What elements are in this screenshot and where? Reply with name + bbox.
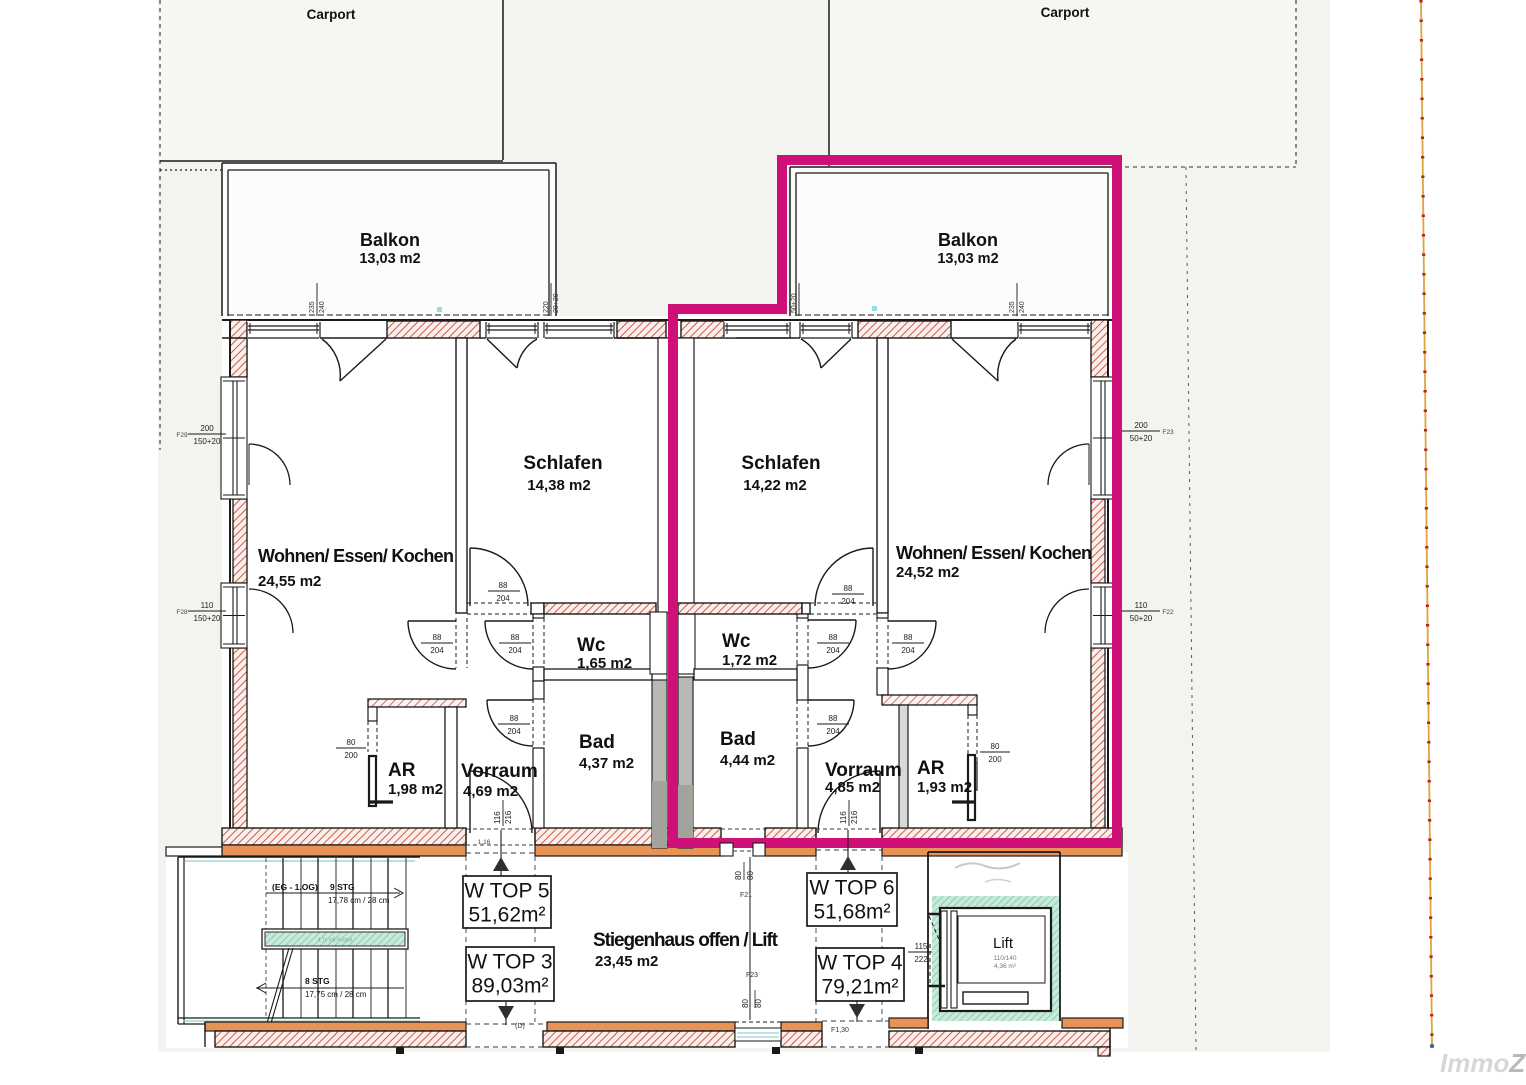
svg-text:50+20: 50+20 xyxy=(791,293,798,313)
svg-text:88: 88 xyxy=(844,584,853,593)
svg-text:89,03m²: 89,03m² xyxy=(471,975,548,998)
svg-text:200: 200 xyxy=(1134,421,1148,430)
svg-text:116: 116 xyxy=(839,811,848,824)
svg-text:Stiegenhaus offen / Lift: Stiegenhaus offen / Lift xyxy=(593,930,779,951)
svg-text:17,75 cm / 28 cm: 17,75 cm / 28 cm xyxy=(305,990,367,999)
svg-text:Wohnen/ Essen/ Kochen: Wohnen/ Essen/ Kochen xyxy=(258,546,454,566)
svg-text:13,03 m2: 13,03 m2 xyxy=(937,251,998,267)
svg-text:Wc: Wc xyxy=(577,635,606,656)
svg-text:W TOP 3: W TOP 3 xyxy=(467,951,552,974)
svg-text:4,36 m²: 4,36 m² xyxy=(994,963,1017,970)
svg-text:110/140: 110/140 xyxy=(993,955,1016,962)
svg-text:4,69 m2: 4,69 m2 xyxy=(463,783,518,800)
svg-text:216: 216 xyxy=(504,810,513,824)
svg-text:204: 204 xyxy=(841,597,855,606)
svg-text:80: 80 xyxy=(991,742,1000,751)
svg-text:50+20: 50+20 xyxy=(1130,614,1153,623)
svg-text:AR: AR xyxy=(388,760,416,781)
svg-text:240: 240 xyxy=(1019,301,1026,313)
svg-text:1,72 m2: 1,72 m2 xyxy=(722,652,777,669)
svg-text:51,62m²: 51,62m² xyxy=(468,904,545,927)
svg-text:204: 204 xyxy=(826,727,840,736)
svg-text:AR: AR xyxy=(917,758,945,779)
svg-text:204: 204 xyxy=(826,646,840,655)
svg-text:Schlafen: Schlafen xyxy=(523,453,602,474)
svg-text:88: 88 xyxy=(511,633,520,642)
svg-text:200: 200 xyxy=(344,751,358,760)
svg-text:240: 240 xyxy=(319,301,326,313)
svg-text:W TOP 6: W TOP 6 xyxy=(809,877,894,900)
svg-text:4.Tr. mit Podest: 4.Tr. mit Podest xyxy=(318,938,353,944)
svg-text:110: 110 xyxy=(1135,601,1148,610)
svg-text:88: 88 xyxy=(510,714,519,723)
svg-text:Schlafen: Schlafen xyxy=(741,453,820,474)
svg-text:(EG - 1.OG): (EG - 1.OG) xyxy=(272,882,318,892)
svg-text:88: 88 xyxy=(829,714,838,723)
svg-text:Balkon: Balkon xyxy=(360,230,420,250)
svg-text:88: 88 xyxy=(829,633,838,642)
svg-text:F29: F29 xyxy=(176,432,188,439)
svg-text:4,85 m2: 4,85 m2 xyxy=(825,779,880,796)
svg-text:F1,30: F1,30 xyxy=(831,1027,849,1034)
svg-text:17,78 cm / 28 cm: 17,78 cm / 28 cm xyxy=(328,896,390,905)
svg-text:220: 220 xyxy=(543,301,550,313)
svg-text:216: 216 xyxy=(850,810,859,824)
svg-text:W TOP 4: W TOP 4 xyxy=(817,952,903,975)
svg-text:200: 200 xyxy=(200,424,214,433)
svg-text:115: 115 xyxy=(915,942,928,951)
svg-text:14,22 m2: 14,22 m2 xyxy=(743,477,806,494)
svg-text:F21: F21 xyxy=(740,892,752,899)
svg-text:235: 235 xyxy=(309,301,316,313)
svg-text:200: 200 xyxy=(988,755,1002,764)
svg-text:204: 204 xyxy=(430,646,444,655)
svg-text:204: 204 xyxy=(507,727,521,736)
svg-text:116: 116 xyxy=(493,811,502,824)
svg-text:1,65 m2: 1,65 m2 xyxy=(577,655,632,672)
svg-text:20+20: 20+20 xyxy=(553,293,560,313)
svg-text:1,93 m2: 1,93 m2 xyxy=(917,779,972,796)
svg-text:150+20: 150+20 xyxy=(194,437,221,446)
svg-text:235: 235 xyxy=(1009,301,1016,313)
svg-text:Bad: Bad xyxy=(579,732,615,753)
svg-text:110: 110 xyxy=(201,601,214,610)
svg-text:79,21m²: 79,21m² xyxy=(821,976,898,999)
svg-text:ImmoZ: ImmoZ xyxy=(1440,1048,1526,1078)
svg-text:51,68m²: 51,68m² xyxy=(813,901,890,924)
svg-text:23,45 m2: 23,45 m2 xyxy=(595,953,658,970)
svg-text:222: 222 xyxy=(914,955,928,964)
svg-text:24,52 m2: 24,52 m2 xyxy=(896,564,959,581)
svg-text:W TOP 5: W TOP 5 xyxy=(464,880,549,903)
svg-text:1,98 m2: 1,98 m2 xyxy=(388,781,443,798)
svg-text:8 STG: 8 STG xyxy=(305,976,330,986)
svg-text:80: 80 xyxy=(734,871,743,880)
svg-text:14,38 m2: 14,38 m2 xyxy=(527,477,590,494)
svg-text:Lift: Lift xyxy=(993,935,1014,952)
svg-text:80: 80 xyxy=(746,871,755,880)
svg-text:13,03 m2: 13,03 m2 xyxy=(359,251,420,267)
svg-text:150+20: 150+20 xyxy=(194,614,221,623)
svg-text:1,16: 1,16 xyxy=(478,839,491,846)
svg-text:9 STG: 9 STG xyxy=(330,882,355,892)
svg-text:88: 88 xyxy=(433,633,442,642)
svg-text:24,55 m2: 24,55 m2 xyxy=(258,573,321,590)
svg-text:204: 204 xyxy=(901,646,915,655)
svg-text:Wc: Wc xyxy=(722,631,751,652)
svg-text:4,44 m2: 4,44 m2 xyxy=(720,752,775,769)
svg-text:Carport: Carport xyxy=(1041,5,1090,20)
svg-text:Carport: Carport xyxy=(307,7,356,22)
svg-text:Vorraum: Vorraum xyxy=(825,760,902,781)
svg-text:F28: F28 xyxy=(176,609,188,616)
svg-text:Balkon: Balkon xyxy=(938,230,998,250)
svg-text:F22: F22 xyxy=(1162,609,1174,616)
svg-text:204: 204 xyxy=(496,594,510,603)
svg-text:Vorraum: Vorraum xyxy=(461,761,538,782)
svg-text:Bad: Bad xyxy=(720,729,756,750)
svg-text:88: 88 xyxy=(499,581,508,590)
svg-text:88: 88 xyxy=(904,633,913,642)
svg-text:80: 80 xyxy=(741,999,750,1008)
svg-text:F23: F23 xyxy=(1162,429,1174,436)
svg-text:204: 204 xyxy=(508,646,522,655)
svg-text:4,37 m2: 4,37 m2 xyxy=(579,755,634,772)
svg-text:F23: F23 xyxy=(746,972,758,979)
svg-text:(D): (D) xyxy=(515,1023,525,1030)
svg-text:Wohnen/ Essen/ Kochen: Wohnen/ Essen/ Kochen xyxy=(896,543,1092,563)
svg-text:80: 80 xyxy=(347,738,356,747)
svg-text:50+20: 50+20 xyxy=(1130,434,1153,443)
